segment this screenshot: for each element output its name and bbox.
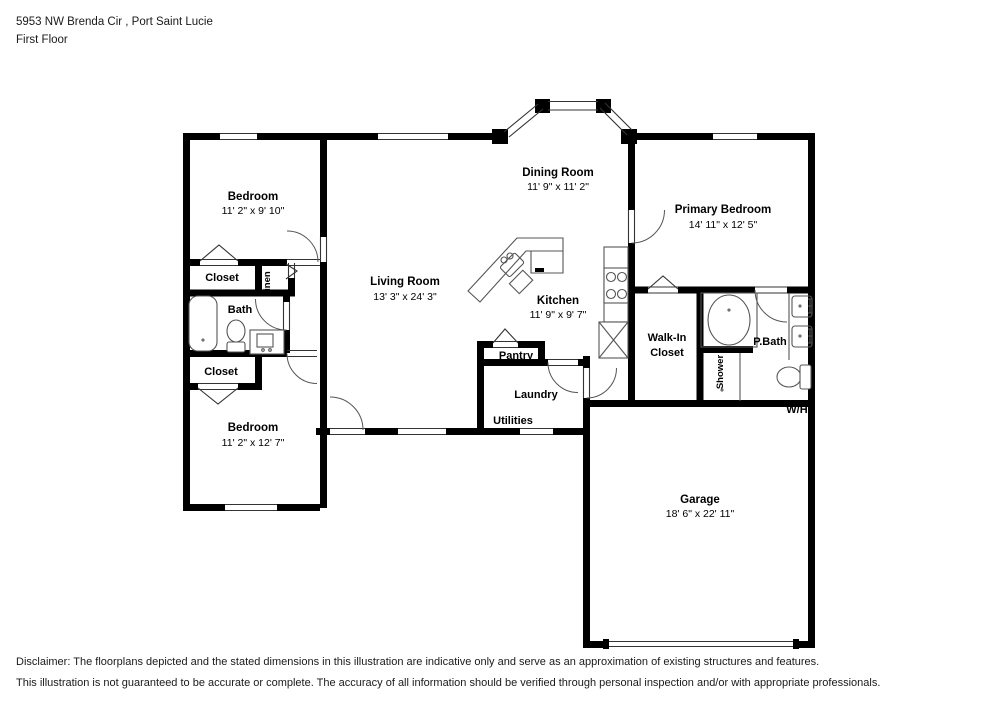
- interior-walls: [183, 133, 815, 508]
- room-label-garage: Garage: [680, 494, 720, 506]
- room-dims-primary-bedroom: 14' 11" x 12' 5": [689, 219, 758, 231]
- room-label-pantry: Pantry: [499, 350, 534, 362]
- room-label-kitchen: Kitchen: [537, 295, 579, 307]
- room-dims-bedroom-top: 11' 2" x 9' 10": [222, 205, 285, 217]
- bathtub: [189, 296, 217, 351]
- room-label-utilities: Utilities: [493, 415, 533, 427]
- disclaimer-line-2: This illustration is not guaranteed to b…: [16, 673, 880, 694]
- room-label-closet-lower: Closet: [204, 366, 238, 378]
- room-labels: Bedroom 11' 2" x 9' 10" Closet Linen Bat…: [204, 167, 808, 520]
- room-dims-bedroom-bottom: 11' 2" x 12' 7": [222, 437, 285, 449]
- garden-tub: [708, 295, 750, 345]
- room-label-bedroom-top: Bedroom: [228, 191, 278, 203]
- toilet-primary: [777, 367, 801, 387]
- room-label-primary-bedroom: Primary Bedroom: [675, 204, 772, 216]
- room-dims-kitchen: 11' 9" x 9' 7": [530, 309, 587, 321]
- garage-door: [603, 639, 799, 649]
- room-label-walk-in-closet-1: Walk-In: [648, 332, 687, 344]
- room-label-linen: Linen: [262, 271, 273, 297]
- room-label-shower: Shower: [715, 355, 726, 390]
- room-label-walk-in-closet-2: Closet: [650, 347, 684, 359]
- garden-tub-platform: [701, 293, 757, 347]
- label-water-heater: W/H: [786, 404, 807, 416]
- room-label-bath: Bath: [228, 304, 253, 316]
- floor-plan-page: 5953 NW Brenda Cir , Port Saint Lucie Fi…: [0, 0, 1000, 707]
- room-dims-living-room: 13' 3" x 24' 3": [373, 291, 437, 303]
- kitchen-counter: [468, 238, 563, 302]
- toilet: [227, 320, 245, 342]
- room-label-p-bath: P.Bath: [753, 336, 787, 348]
- disclaimer-line-1: Disclaimer: The floorplans depicted and …: [16, 652, 880, 673]
- room-label-bedroom-bottom: Bedroom: [228, 422, 278, 434]
- room-label-living-room: Living Room: [370, 276, 440, 288]
- room-dims-garage: 18' 6" x 22' 11": [666, 508, 735, 520]
- room-label-closet-upper: Closet: [205, 272, 239, 284]
- disclaimer: Disclaimer: The floorplans depicted and …: [16, 652, 880, 694]
- room-label-dining-room: Dining Room: [522, 167, 594, 179]
- room-label-laundry: Laundry: [514, 389, 558, 401]
- room-dims-dining-room: 11' 9" x 11' 2": [527, 181, 589, 193]
- bay-window-posts: [492, 99, 637, 144]
- floor-plan: Bedroom 11' 2" x 9' 10" Closet Linen Bat…: [0, 0, 1000, 707]
- windows: [220, 102, 757, 511]
